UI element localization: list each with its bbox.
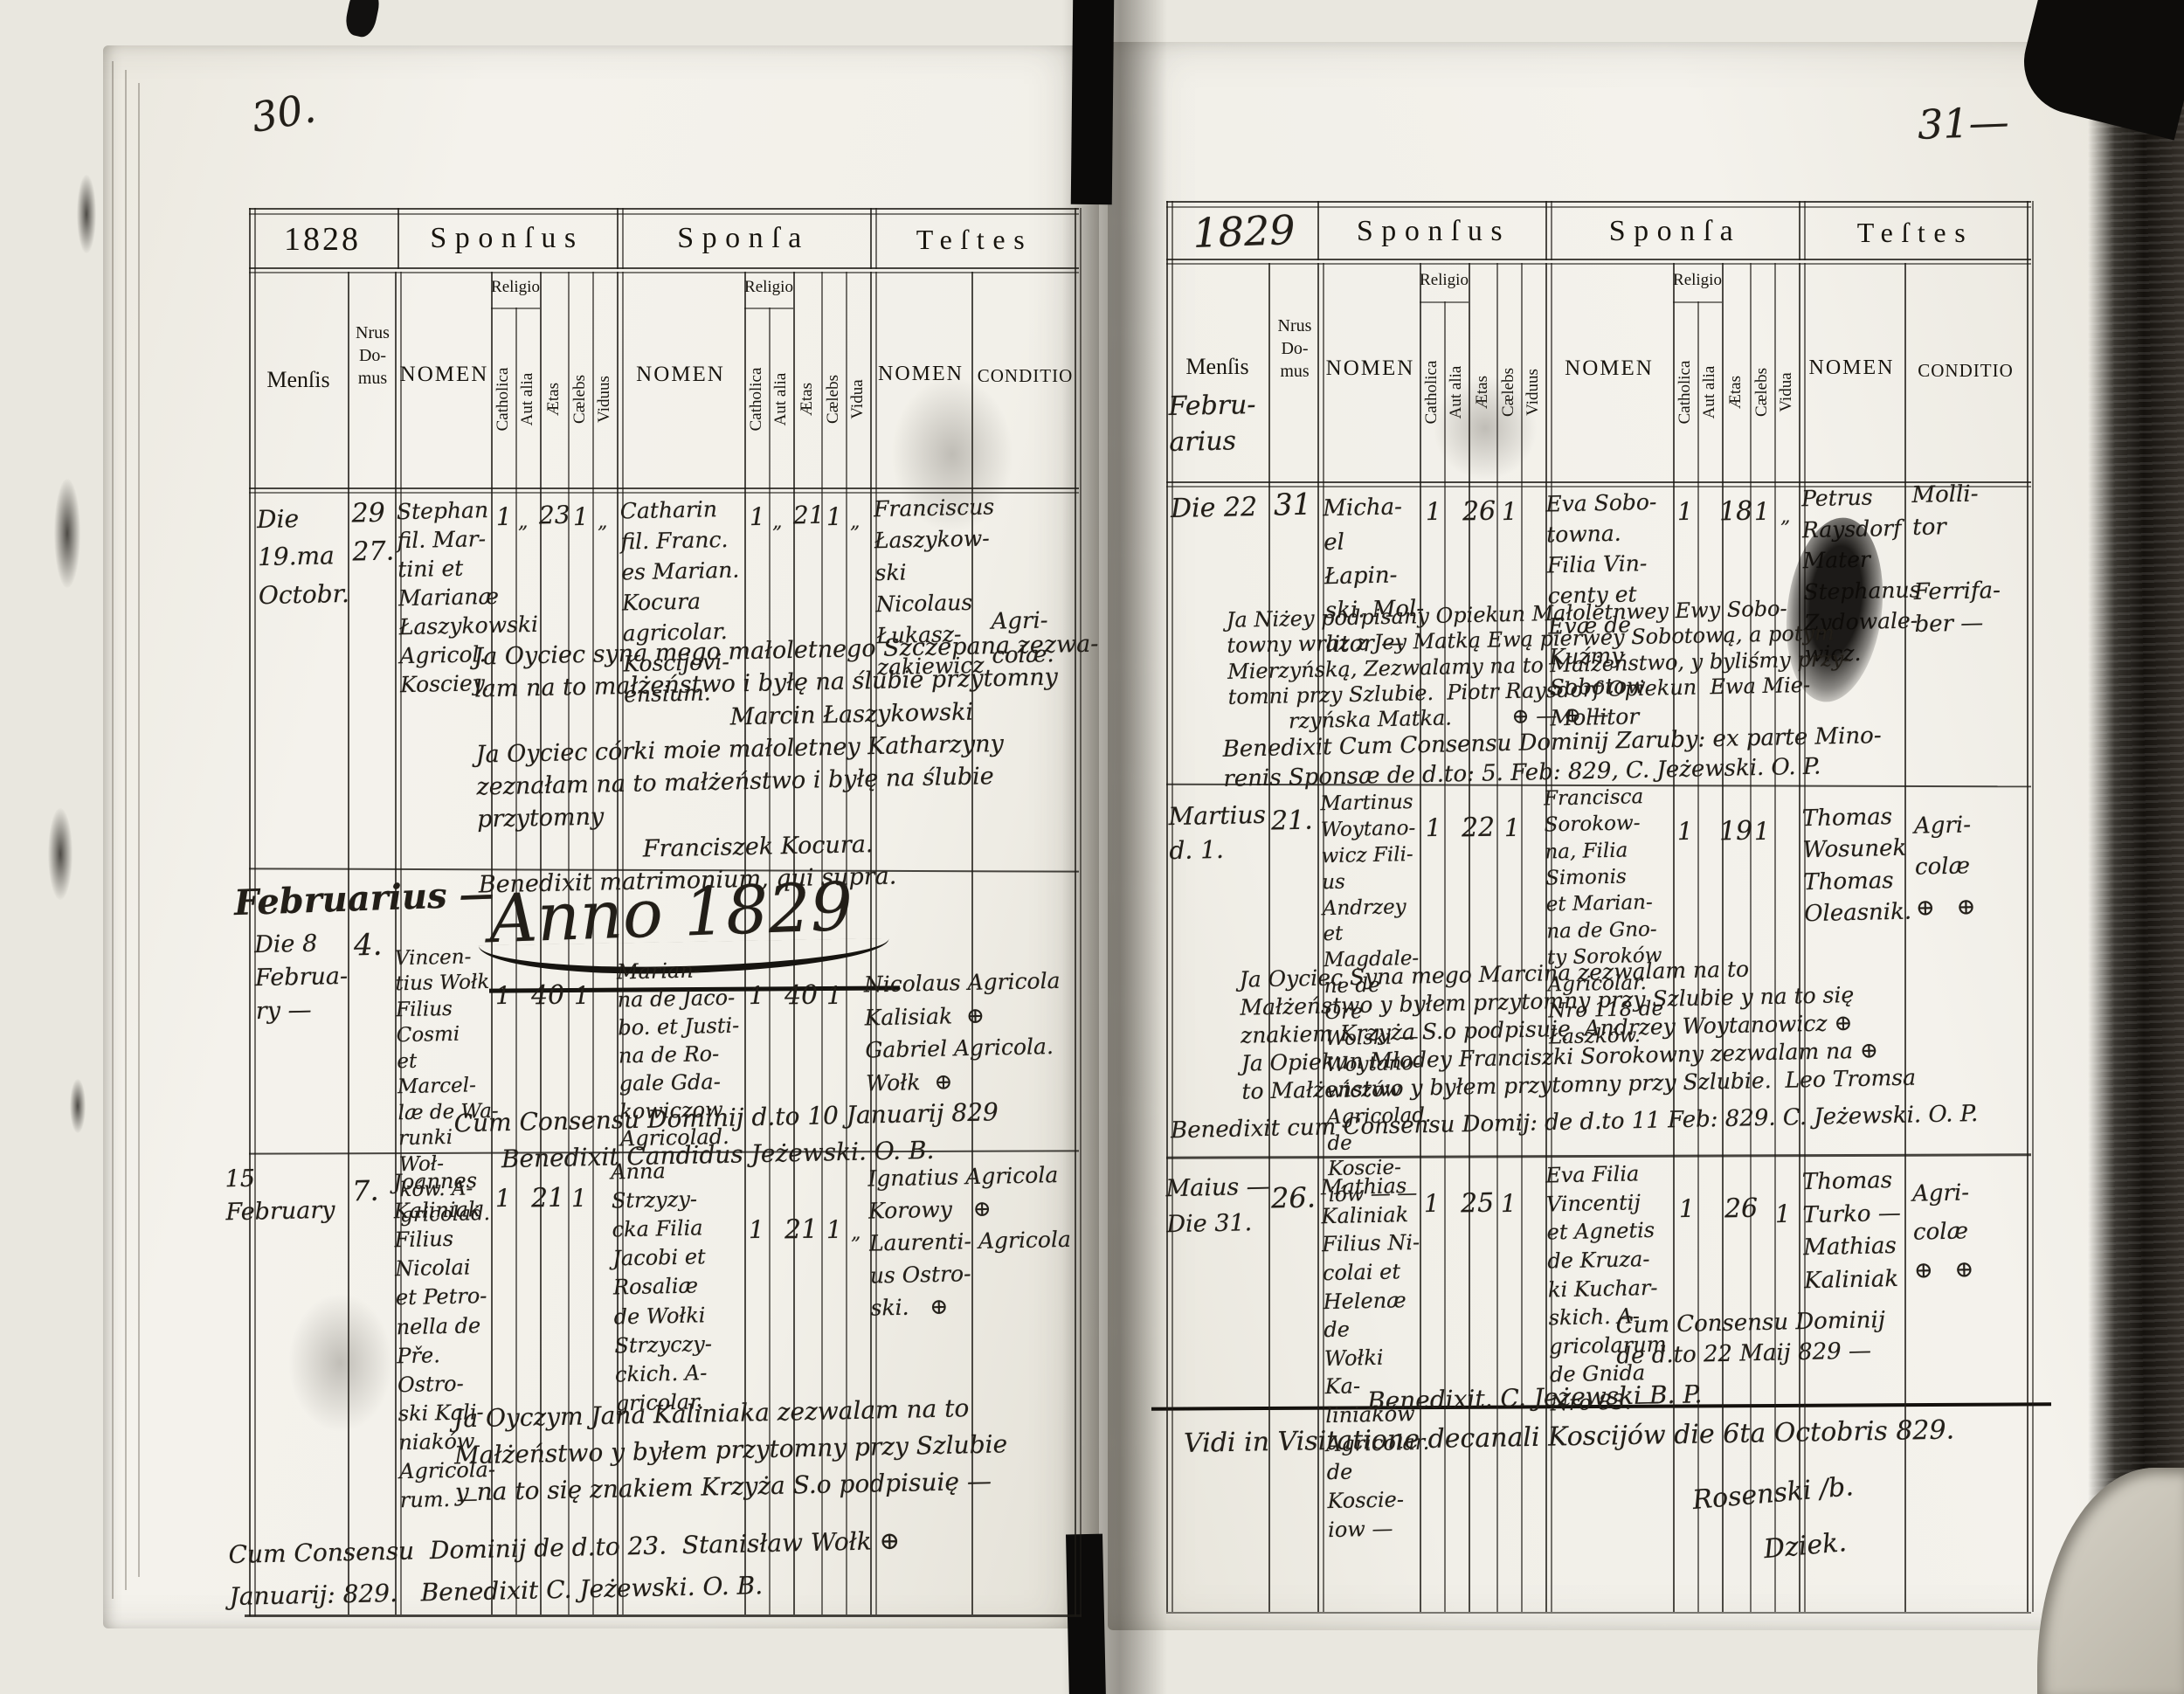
header-mensis: Menſis [249, 367, 348, 393]
header-catholica-sponsa: Catholica [1676, 318, 1695, 467]
column-rule [2027, 201, 2028, 1612]
register-scan: 30. 1828 Sponſus Sponſa Teſtes Menſis Nr… [0, 0, 2184, 1694]
entry-sponsa-aetas: 40 [784, 977, 819, 1015]
visitation-signature: Rosenski /b. Dziek. [1690, 1459, 1861, 1583]
column-rule [395, 272, 397, 1614]
entry-sponsa-aetas: 21 [793, 498, 825, 534]
entry-sponsus-caelebs: 1 [571, 1181, 588, 1217]
entry-sponsus-caelebs: 1 [1501, 1186, 1517, 1222]
entry-sponsus-caelebs: 1 [1502, 494, 1518, 530]
ink-mark-top-left [343, 0, 383, 39]
header-sponsa: Sponſa [1551, 215, 1800, 248]
header-testes: Teſtes [1804, 217, 2027, 249]
entry-house-number: 7. [352, 1171, 379, 1212]
mensis-month-note: Febru- arius [1168, 388, 1257, 460]
header-nrus-domus: Nrus Do- mus [1268, 315, 1321, 383]
entry-sponsa-catholica: 1 [749, 1213, 765, 1248]
entry-sponsa-aetas: 18 [1719, 493, 1753, 531]
page-number-right: 31— [1917, 93, 2010, 154]
page-stack-line [112, 61, 114, 1599]
table-rule [249, 208, 1079, 210]
entry-testes-names: Thomas Wosunek Thomas Oleasnik. [1801, 801, 1904, 930]
header-caelebs-sponsus: Cælebs [570, 325, 590, 474]
entry-sponsa-vidua: „ [851, 1220, 861, 1248]
header-sponsa: Sponſa [617, 222, 870, 255]
entry-sponsus-aetas: 23 [539, 498, 570, 534]
entry-sponsa-caelebs: 1 [826, 1213, 843, 1248]
column-rule [2032, 201, 2034, 1612]
column-rule [1317, 263, 1319, 1612]
entry-sponsa-name: Anna Strzyzy- cka Filia Jacobi et Rosali… [611, 1156, 740, 1419]
header-nomen-sponsa: NOMEN [617, 363, 744, 387]
entry-sponsa-aetas: 19 [1719, 812, 1753, 851]
entry-conditio: Agri- colæ ⊕ ⊕ [1914, 805, 1976, 929]
entry-sponsus-catholica: 1 [495, 978, 512, 1014]
entry-sponsa-catholica: 1 [749, 978, 765, 1014]
header-religio-sponsa: Religio [1668, 271, 1727, 290]
entry-testes-names: Thomas Turko — Mathias Kaliniak [1801, 1165, 1904, 1298]
header-mensis: Menſis [1166, 354, 1268, 380]
entry-sponsa-catholica: 1 [750, 500, 766, 536]
header-vidua-sponsa: Vidua [1777, 318, 1796, 467]
entry-testes-names: Nicolaus Agricola Kalisiak ⊕ Gabriel Agr… [863, 965, 1075, 1100]
entry-sponsa-autalia: „ [772, 508, 783, 536]
entry-conditio: Agri- colæ ⊕ ⊕ [1912, 1173, 1974, 1290]
entry-sponsa-aetas: 26 [1724, 1190, 1759, 1228]
entry-consent-note2: Cum Consensu Dominij de d.to 23. Stanisł… [228, 1517, 1060, 1618]
page-stack-line [138, 83, 140, 1577]
edge-stain [48, 808, 73, 900]
table-rule [249, 272, 1079, 273]
entry-consent-note: Ja Oyczym Jana Kaliniaka zezwalam na to … [453, 1387, 1084, 1511]
binding-tape-top [1071, 0, 1115, 204]
entry-sponsus-aetas: 25 [1461, 1185, 1495, 1223]
header-nrus-domus: Nrus Do- mus [348, 322, 397, 390]
entry-sponsa-catholica: 1 [1677, 814, 1694, 850]
header-aetas-sponsus: Ætas [544, 325, 563, 474]
entry-sponsus-catholica: 1 [1426, 811, 1442, 847]
header-religio-sponsus: Religio [1414, 271, 1474, 290]
header-aut-alia-sponsus: Aut alia [518, 325, 537, 474]
entry-sponsa-caelebs: 1 [1754, 494, 1771, 530]
entry-sponsus-aetas: 22 [1462, 809, 1496, 847]
entry-testes-names: Ignatius Agricola Korowy ⊕ Laurenti- Agr… [867, 1158, 1089, 1324]
edge-stain [77, 175, 96, 253]
header-vidua-sponsa: Vidua [848, 325, 867, 474]
entry-house-number: 4. [353, 924, 382, 968]
column-rule [1268, 263, 1270, 1612]
year-label: 1828 [249, 220, 396, 259]
edge-stain [54, 479, 80, 588]
entry-sponsus-aetas: 26 [1462, 493, 1496, 531]
entry-sponsus-name: Mathias Kaliniak Filius Ni- colai et Hel… [1321, 1172, 1427, 1544]
entry-sponsus-catholica: 1 [1426, 494, 1442, 530]
year-label: 1829 [1170, 200, 1318, 264]
header-viduus-sponsus: Viduus [595, 325, 614, 474]
entry-consent-note: Ja Oyciec Syna mego Marcina zezwalam na … [1239, 949, 2054, 1105]
edge-stain [70, 1079, 86, 1133]
header-nomen-sponsa: NOMEN [1545, 356, 1673, 381]
entry-sponsus-caelebs: 1 [1504, 811, 1521, 847]
header-caelebs-sponsa: Cælebs [1752, 318, 1772, 467]
entry-sponsa-vidua: „ [850, 508, 860, 536]
entry-consent-note: Ja Niżey podpisany Opiekun Małoletnwey E… [1227, 591, 2050, 736]
table-rule [1166, 263, 2031, 265]
entry-mensis: Maius — Die 31. [1165, 1170, 1271, 1242]
entry-sponsa-aetas: 21 [784, 1211, 819, 1249]
entry-sponsa-caelebs: 1 [1775, 1197, 1792, 1233]
header-aut-alia-sponsa: Aut alia [771, 325, 791, 474]
header-nomen-sponsus: NOMEN [397, 363, 491, 387]
header-conditio: CONDITIO [1904, 360, 2027, 382]
entry-mensis: Die 22 [1171, 488, 1258, 529]
header-sponsus: Sponſus [1322, 215, 1545, 248]
entry-sponsus-autalia: „ [518, 508, 529, 536]
header-testes: Teſtes [870, 224, 1079, 256]
header-conditio: CONDITIO [971, 365, 1079, 387]
table-rule [1166, 1612, 2031, 1614]
entry-sponsa-catholica: 1 [1677, 494, 1694, 530]
entry-mensis: 15 February [225, 1161, 335, 1229]
entry-mensis: Die 8 Februa- ry — [254, 927, 349, 1028]
entry-mensis: Martius d. 1. [1168, 798, 1267, 868]
entry-sponsa-caelebs: 1 [826, 500, 843, 536]
entry-house-number: 29 27. [351, 494, 395, 571]
entry-house-number: 31 [1273, 484, 1311, 528]
entry-sponsus-caelebs: 1 [573, 500, 590, 536]
table-rule [249, 213, 1079, 215]
column-rule [1166, 201, 1168, 1612]
paper-smudge [1433, 376, 1538, 481]
entry-sponsus-catholica: 1 [495, 1181, 512, 1217]
entry-sponsa-catholica: 1 [1679, 1192, 1696, 1227]
entry-house-number: 21. [1271, 802, 1314, 840]
entry-sponsus-viduus: „ [598, 508, 608, 536]
entry-sponsus-caelebs: 1 [574, 978, 591, 1014]
section-month-heading: Februarius — [233, 869, 494, 929]
entry-house-number: 26. [1271, 1177, 1317, 1218]
column-rule [1545, 201, 1547, 260]
paper-smudge [288, 1293, 393, 1433]
table-rule [249, 267, 1079, 269]
entry-consent-note: Cum Consensu Dominij de d.to 22 Maij 829… [1615, 1303, 1992, 1372]
entry-sponsus-aetas: 21 [531, 1179, 565, 1218]
page-number-left: 30. [247, 79, 321, 147]
header-caelebs-sponsa: Cælebs [824, 325, 843, 474]
entry-sponsa-caelebs: 1 [826, 978, 843, 1014]
header-aetas-sponsa: Ætas [798, 325, 817, 474]
page-stack-line [125, 70, 127, 1590]
header-religio-sponsa: Religio [739, 278, 798, 297]
book-edge-right [2088, 0, 2184, 1694]
header-aut-alia-sponsa: Aut alia [1700, 318, 1719, 467]
header-nomen-sponsus: NOMEN [1321, 356, 1420, 381]
header-catholica-sponsa: Catholica [747, 325, 766, 474]
header-catholica-sponsus: Catholica [494, 325, 513, 474]
header-aetas-sponsa: Ætas [1726, 318, 1745, 467]
column-rule [1904, 263, 1906, 1612]
header-religio-sponsus: Religio [486, 278, 545, 297]
entry-mensis: Die 19.ma Octobr. [257, 499, 350, 614]
entry-sponsus-catholica: 1 [496, 500, 513, 536]
entry-sponsus-catholica: 1 [1424, 1186, 1441, 1222]
entry-sponsa-caelebs: 1 [1754, 814, 1771, 850]
entry-sponsa-vidua: „ [1780, 503, 1791, 531]
paper-smudge [891, 376, 1013, 533]
header-sponsus: Sponſus [397, 222, 617, 255]
entry-sponsus-aetas: 40 [531, 977, 565, 1015]
header-nomen-testes: NOMEN [1799, 356, 1904, 380]
